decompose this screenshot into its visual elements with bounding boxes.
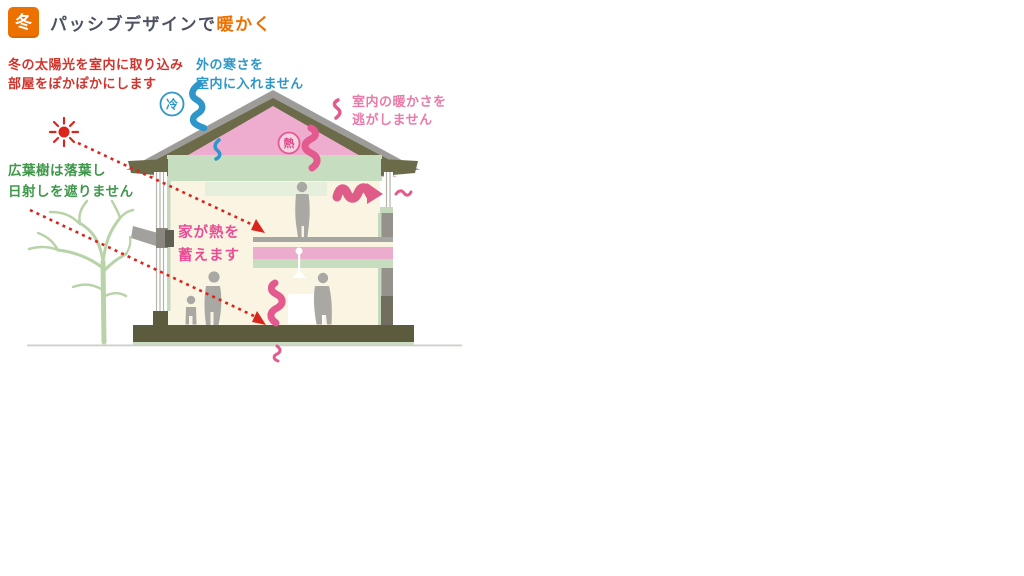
header: 冬 パッシブデザインで暖かく [8, 7, 272, 38]
title-accent: 暖かく [217, 15, 273, 34]
ground-line [27, 345, 462, 347]
sun-icon [50, 118, 78, 146]
right-wall-base [381, 296, 393, 325]
second-floor-ceiling [205, 182, 327, 196]
annotation-sunlight-line1: 冬の太陽光を室内に取り込み [8, 57, 184, 72]
heat-outside-wall-arrow [396, 191, 411, 195]
slab-insulation-line [133, 342, 414, 345]
cold-badge-label: 冷 [166, 97, 178, 112]
annotation-warmth-line1: 室内の暖かさを [352, 94, 447, 109]
passive-design-winter-diagram: 冬 パッシブデザインで暖かく [0, 0, 1024, 576]
left-foundation-block [153, 311, 168, 325]
house-cross-section-diagram: 冷 熱 冬の太陽光を室内に取り込み 部屋をぽかぽかにします 外の寒さを 室内に入… [0, 0, 470, 370]
cold-badge: 冷 [161, 93, 184, 116]
right-window-glass [384, 172, 393, 207]
lamp-stem [298, 253, 300, 273]
second-floor-slab [253, 237, 393, 268]
season-badge-winter: 冬 [8, 7, 39, 38]
annotation-keep-warmth: 室内の暖かさを 逃がしません [352, 94, 447, 127]
annotation-sunlight-line2: 部屋をぽかぽかにします [8, 76, 157, 91]
left-wall-window [153, 172, 171, 325]
floor-deck-gray [253, 237, 393, 242]
heat-under-slab-arrow [274, 346, 280, 361]
annotation-deciduous: 広葉樹は落葉し 日射しを遮りません [8, 162, 134, 199]
heat-badge-label: 熱 [284, 136, 295, 150]
deciduous-tree [29, 201, 133, 342]
annotation-sunlight: 冬の太陽光を室内に取り込み 部屋をぽかぽかにします [8, 57, 184, 91]
annotation-cold-line2: 室内に入れません [196, 76, 304, 91]
annotation-cold-line1: 外の寒さを [195, 57, 264, 72]
shading-device [131, 226, 174, 248]
awning-plate [131, 226, 158, 246]
floor-slab [133, 325, 414, 342]
heat-badge: 熱 [279, 133, 300, 154]
ceiling-insulation-green [167, 155, 382, 181]
page-title: パッシブデザインで暖かく [50, 10, 272, 35]
floor-thermal-mass-pink [253, 247, 393, 259]
floor-gap-cream [253, 242, 393, 247]
right-window-sill-green [380, 207, 393, 213]
foundation [133, 325, 414, 345]
annotation-tree-line1: 広葉樹は落葉し [8, 162, 106, 178]
annotation-warmth-line2: 逃がしません [352, 112, 433, 127]
right-wall-inner-green [378, 213, 382, 325]
title-main: パッシブデザインで [50, 15, 217, 34]
annotation-storage-line2: 蓄えます [178, 246, 240, 264]
annotation-cold-block: 外の寒さを 室内に入れません [195, 57, 304, 91]
awning-box [165, 230, 174, 247]
heat-escaping-arrow-small [334, 100, 339, 118]
annotation-tree-line2: 日射しを遮りません [8, 183, 134, 199]
annotation-storage-line1: 家が熱を [178, 223, 240, 241]
floor-insulation-green [253, 259, 393, 268]
